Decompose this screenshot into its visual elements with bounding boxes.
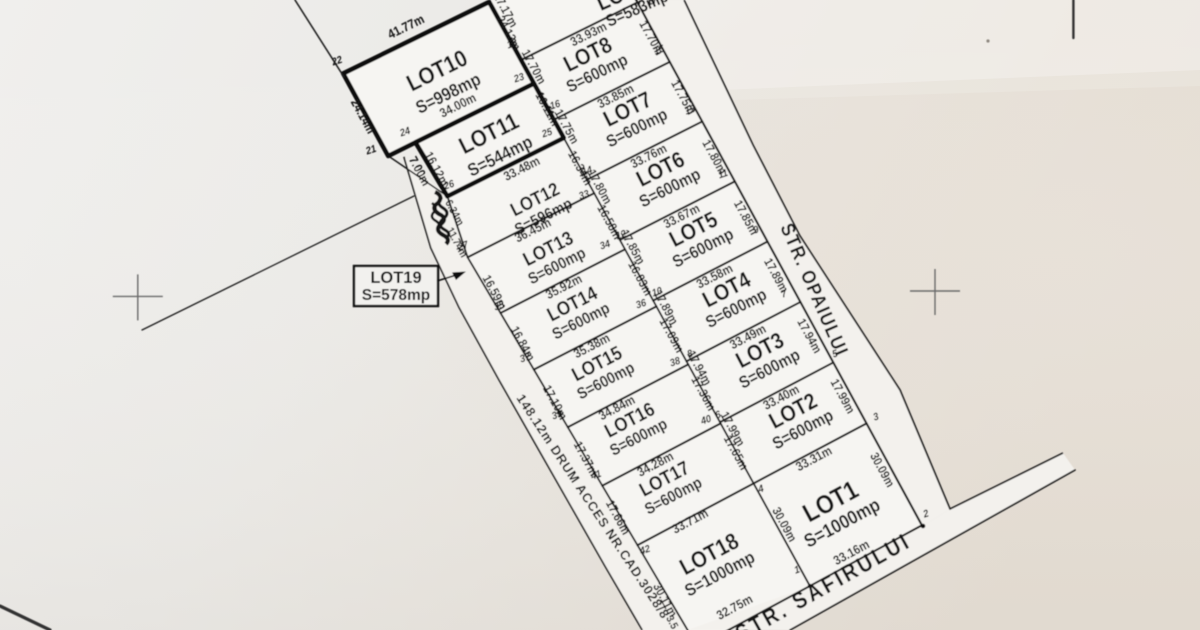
svg-text:LOT19: LOT19 (370, 269, 421, 287)
svg-text:S=578mp: S=578mp (362, 287, 431, 304)
